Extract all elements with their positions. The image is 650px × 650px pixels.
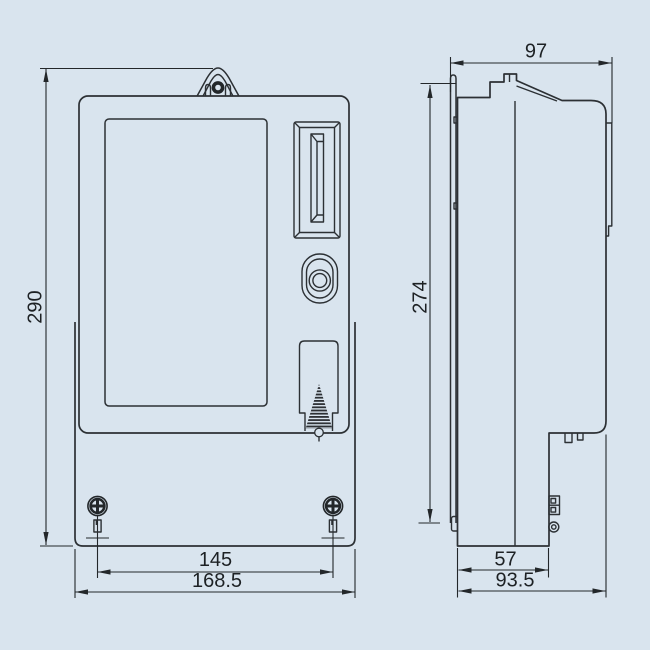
arrowhead-right	[320, 569, 333, 574]
dim-label-57: 57	[494, 549, 516, 571]
clip-detail-top	[551, 499, 556, 504]
side-body-outline	[458, 74, 607, 546]
hanging-hook	[196, 68, 240, 98]
dim-mounting-height: 274	[410, 84, 457, 524]
clip-detail-bottom	[551, 508, 556, 513]
dim-label-290: 290	[25, 290, 47, 323]
arrowhead-left	[98, 569, 111, 574]
arrowhead-left	[459, 567, 472, 572]
seal-screw	[315, 428, 324, 437]
side-view	[451, 74, 612, 546]
dim-label-145: 145	[199, 549, 232, 571]
seal-ring-inner	[552, 525, 556, 529]
display-window	[105, 119, 267, 406]
drawing-canvas: 290 145 168.5 97	[0, 0, 650, 650]
arrowhead-up	[43, 69, 48, 82]
dim-label-97: 97	[525, 41, 547, 63]
dim-label-274: 274	[410, 280, 432, 313]
arrowhead-left	[75, 589, 88, 594]
terminal-clip	[549, 496, 560, 532]
mounting-bracket	[451, 75, 457, 523]
arrowhead-down	[43, 532, 48, 545]
arrowhead-right	[593, 588, 606, 593]
card-slot-side-bump	[606, 123, 612, 236]
arrowhead-left	[459, 588, 472, 593]
dim-label-93-5: 93.5	[496, 570, 535, 592]
arrowhead-down	[427, 509, 432, 522]
cover-bottom-tabs	[565, 433, 583, 443]
arrowhead-right	[535, 567, 548, 572]
front-view	[75, 68, 355, 578]
arrowhead-left	[451, 60, 464, 65]
dim-label-168-5: 168.5	[192, 570, 242, 592]
seal-ring-outer	[549, 522, 559, 532]
meter-dimension-drawing: 290 145 168.5 97	[0, 0, 650, 650]
arrowhead-right	[342, 589, 355, 594]
arrowhead-up	[427, 85, 432, 98]
arrowhead-right	[599, 60, 612, 65]
hook-hole-icon	[213, 83, 222, 92]
